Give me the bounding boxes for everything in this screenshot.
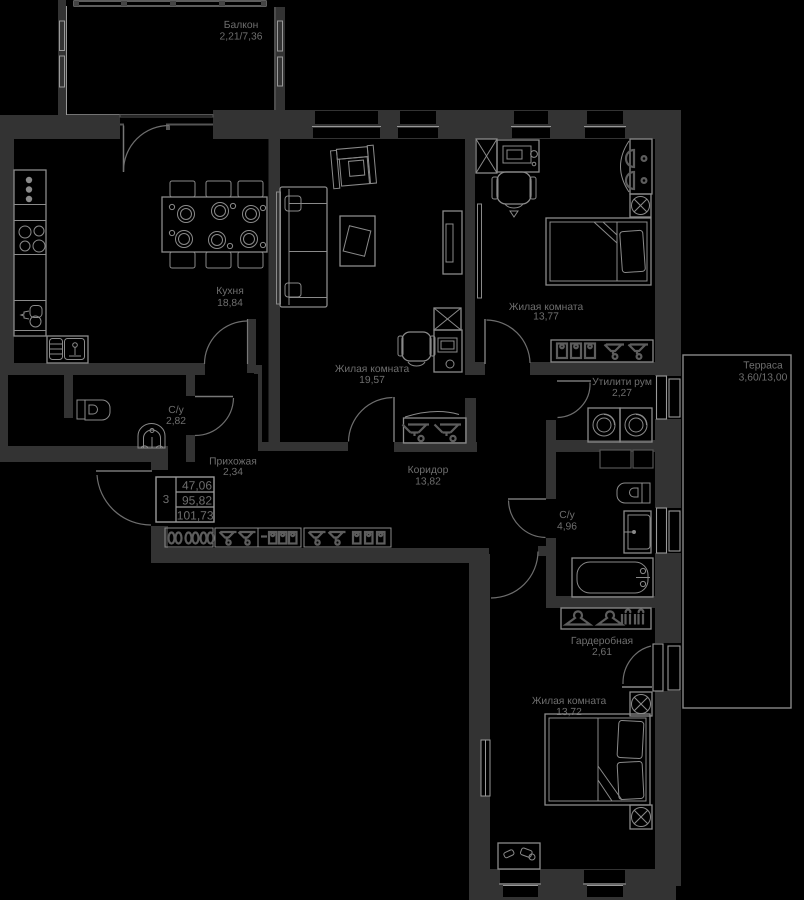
svg-text:Жилая комната: Жилая комната xyxy=(532,696,607,707)
svg-text:2,82: 2,82 xyxy=(166,416,186,427)
svg-text:2,34: 2,34 xyxy=(223,467,243,478)
svg-text:18,84: 18,84 xyxy=(217,298,243,309)
svg-text:47,06: 47,06 xyxy=(182,479,212,493)
svg-text:13,72: 13,72 xyxy=(556,707,582,718)
svg-text:Кухня: Кухня xyxy=(216,286,244,297)
svg-text:95,82: 95,82 xyxy=(182,494,212,508)
svg-text:Утилити рум: Утилити рум xyxy=(592,377,652,388)
svg-text:С/у: С/у xyxy=(559,510,575,521)
svg-text:13,82: 13,82 xyxy=(415,477,441,488)
svg-text:Коридор: Коридор xyxy=(408,465,449,476)
svg-text:101,73: 101,73 xyxy=(177,509,214,523)
svg-text:13,77: 13,77 xyxy=(533,312,559,323)
svg-text:Жилая комната: Жилая комната xyxy=(335,364,410,375)
svg-text:2,27: 2,27 xyxy=(612,388,632,399)
svg-text:Прихожая: Прихожая xyxy=(209,457,257,468)
svg-text:Гардеробная: Гардеробная xyxy=(571,636,633,647)
svg-text:19,57: 19,57 xyxy=(359,375,385,386)
svg-text:С/у: С/у xyxy=(168,405,184,416)
svg-text:2,21/7,36: 2,21/7,36 xyxy=(220,32,263,43)
svg-text:4,96: 4,96 xyxy=(557,522,577,533)
svg-text:Балкон: Балкон xyxy=(224,20,259,31)
svg-text:3: 3 xyxy=(163,494,169,506)
svg-text:Терраса: Терраса xyxy=(743,361,783,372)
svg-text:2,61: 2,61 xyxy=(592,647,612,658)
svg-text:3,60/13,00: 3,60/13,00 xyxy=(739,373,788,384)
